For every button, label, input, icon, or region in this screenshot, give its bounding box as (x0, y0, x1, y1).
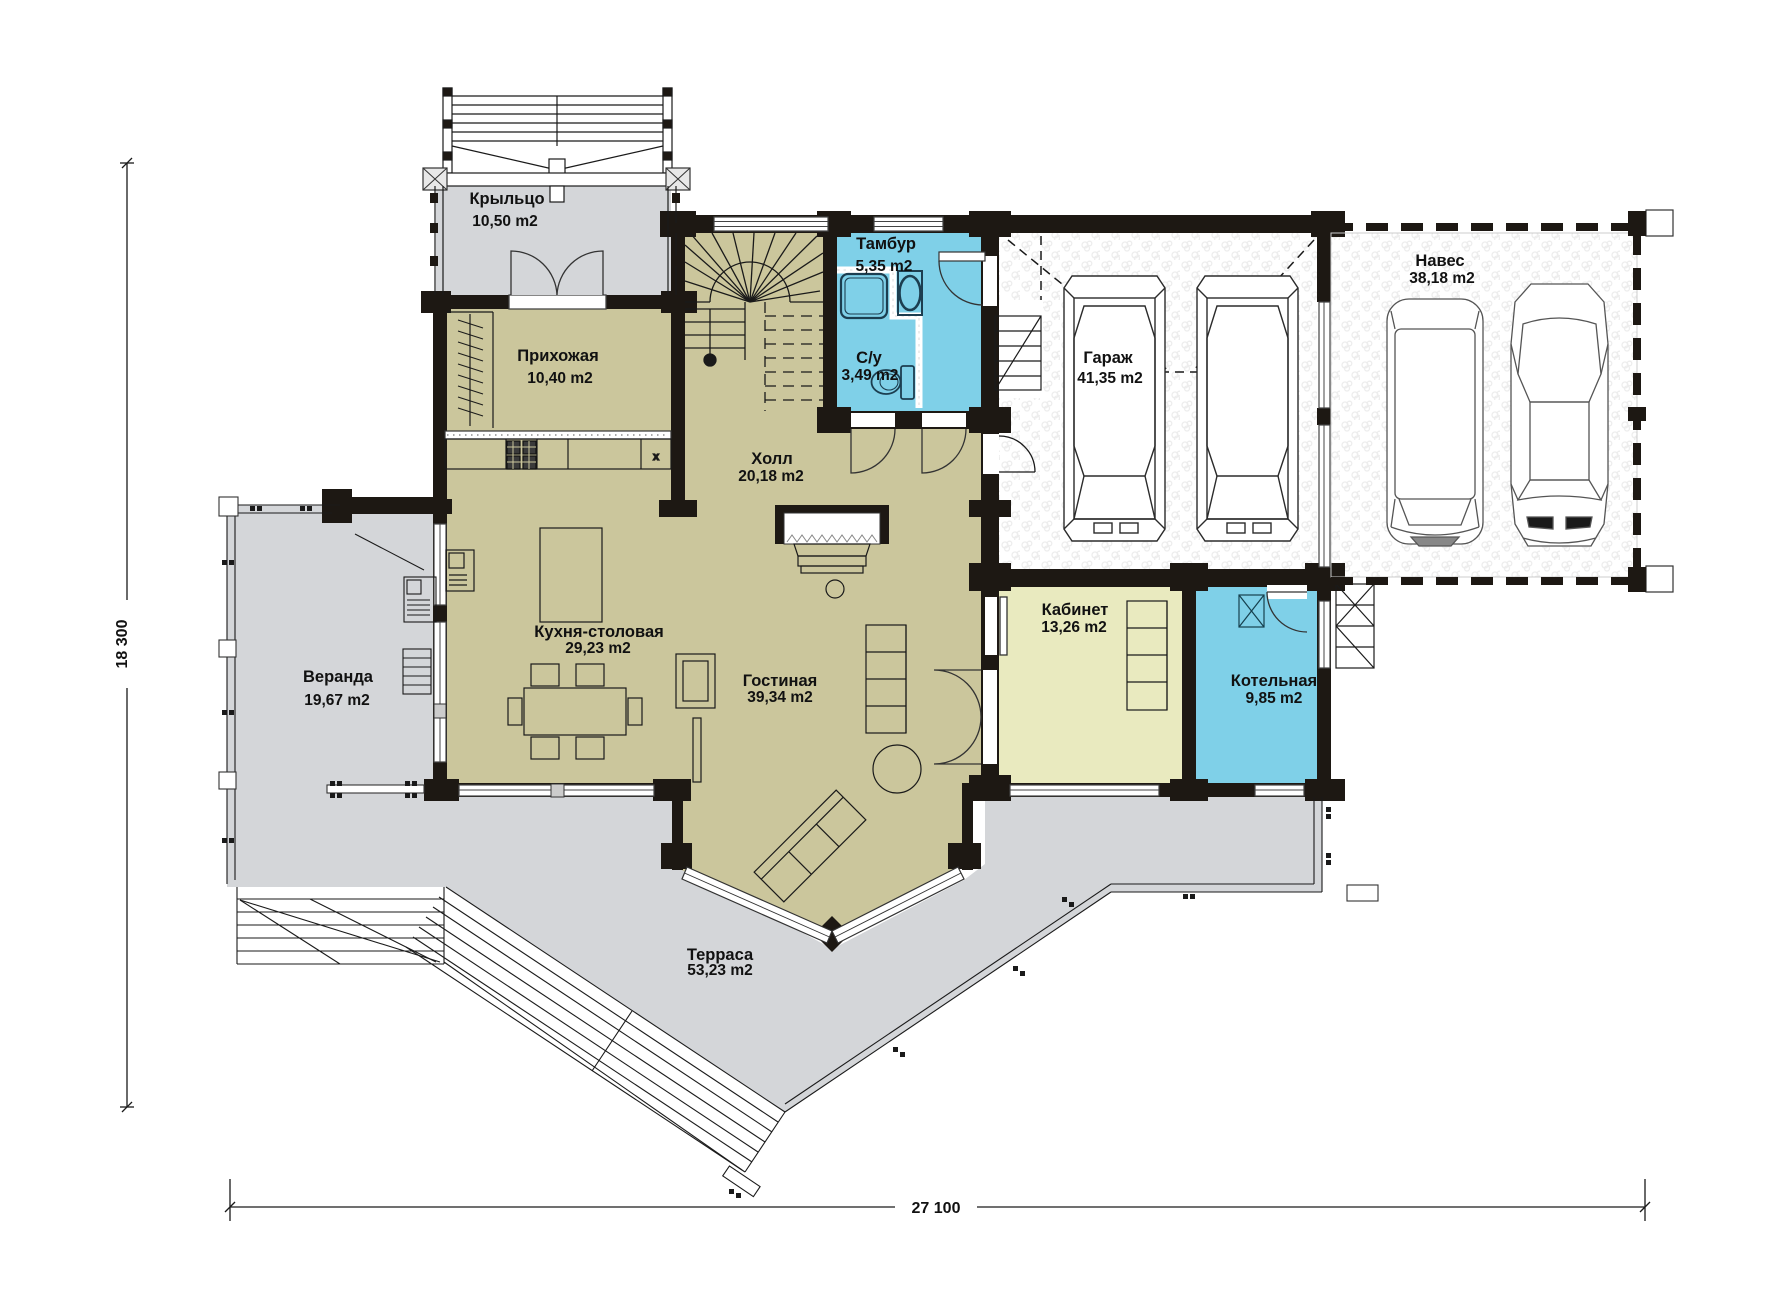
svg-text:Тамбур: Тамбур (856, 235, 916, 253)
svg-text:19,67 m2: 19,67 m2 (304, 692, 370, 709)
svg-text:10,40 m2: 10,40 m2 (527, 370, 593, 387)
svg-text:9,85 m2: 9,85 m2 (1246, 690, 1303, 707)
svg-text:x: x (653, 451, 660, 463)
svg-text:Кухня-столовая: Кухня-столовая (534, 623, 664, 641)
svg-text:Котельная: Котельная (1231, 672, 1317, 690)
svg-text:53,23 m2: 53,23 m2 (687, 962, 753, 979)
svg-text:Кабинет: Кабинет (1042, 601, 1109, 619)
svg-text:13,26 m2: 13,26 m2 (1041, 619, 1107, 636)
svg-text:27 100: 27 100 (912, 1200, 961, 1217)
svg-text:Веранда: Веранда (303, 668, 374, 686)
svg-text:Прихожая: Прихожая (517, 347, 598, 365)
svg-text:Холл: Холл (751, 450, 792, 468)
svg-text:Гостиная: Гостиная (743, 672, 818, 690)
svg-text:С/у: С/у (856, 349, 883, 367)
svg-text:20,18 m2: 20,18 m2 (738, 468, 804, 485)
svg-text:18 300: 18 300 (114, 619, 131, 668)
svg-text:10,50 m2: 10,50 m2 (472, 213, 538, 230)
svg-text:Гараж: Гараж (1083, 349, 1133, 367)
svg-text:41,35 m2: 41,35 m2 (1077, 370, 1143, 387)
svg-text:3,49 m2: 3,49 m2 (842, 367, 899, 384)
svg-text:39,34 m2: 39,34 m2 (747, 689, 813, 706)
svg-text:Крыльцо: Крыльцо (469, 190, 544, 208)
svg-text:5,35 m2: 5,35 m2 (856, 258, 913, 275)
svg-text:29,23 m2: 29,23 m2 (565, 640, 631, 657)
svg-text:Навес: Навес (1415, 252, 1464, 270)
svg-text:38,18 m2: 38,18 m2 (1409, 270, 1475, 287)
